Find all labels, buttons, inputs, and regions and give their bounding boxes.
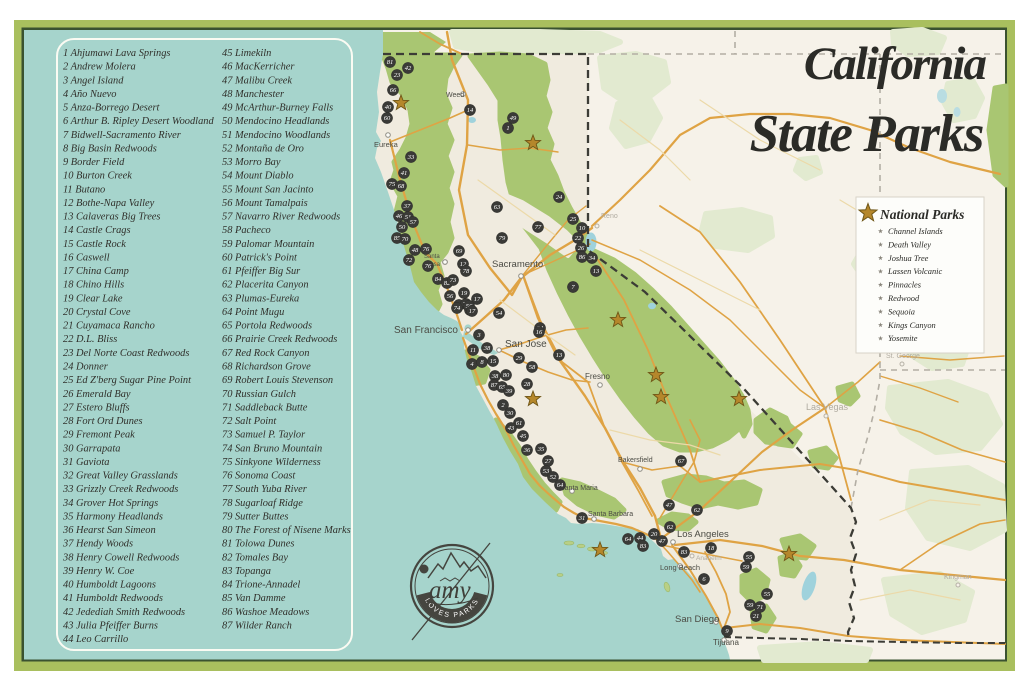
svg-text:60 Patrick's Point: 60 Patrick's Point — [222, 253, 298, 264]
svg-text:25: 25 — [570, 216, 577, 223]
svg-text:50: 50 — [399, 224, 406, 231]
svg-text:Sequoia: Sequoia — [888, 307, 915, 316]
svg-text:43: 43 — [508, 425, 515, 432]
svg-text:71 Saddleback Butte: 71 Saddleback Butte — [222, 402, 308, 413]
svg-text:Lassen Volcanic: Lassen Volcanic — [887, 267, 942, 276]
svg-text:61 Pfeiffer Big Sur: 61 Pfeiffer Big Sur — [222, 266, 301, 277]
svg-text:29 Fremont Peak: 29 Fremont Peak — [63, 430, 135, 441]
svg-text:52 Montaña de Oro: 52 Montaña de Oro — [222, 143, 304, 154]
svg-text:78: 78 — [463, 268, 470, 275]
svg-text:83 Topanga: 83 Topanga — [222, 566, 271, 577]
svg-text:3 Angel Island: 3 Angel Island — [62, 75, 124, 86]
svg-text:68 Richardson Grove: 68 Richardson Grove — [222, 362, 311, 373]
svg-text:37: 37 — [403, 203, 411, 210]
svg-text:14: 14 — [467, 107, 474, 114]
svg-text:64 Point Mugu: 64 Point Mugu — [222, 307, 284, 318]
svg-text:Santa Barbara: Santa Barbara — [588, 511, 633, 518]
svg-text:1: 1 — [506, 125, 509, 132]
svg-text:56 Mount Tamalpais: 56 Mount Tamalpais — [222, 198, 308, 209]
svg-text:84: 84 — [435, 276, 442, 283]
svg-text:73 Samuel P. Taylor: 73 Samuel P. Taylor — [222, 430, 306, 441]
svg-text:34 Grover Hot Springs: 34 Grover Hot Springs — [62, 498, 158, 509]
svg-text:77 South Yuba River: 77 South Yuba River — [222, 484, 308, 495]
svg-text:19: 19 — [461, 290, 468, 297]
svg-text:55: 55 — [746, 554, 753, 561]
svg-text:33: 33 — [407, 154, 415, 161]
svg-text:31 Gaviota: 31 Gaviota — [62, 457, 109, 468]
svg-text:28: 28 — [524, 381, 531, 388]
svg-text:Long Beach: Long Beach — [660, 563, 700, 572]
svg-text:63 Plumas-Eureka: 63 Plumas-Eureka — [222, 293, 299, 304]
svg-text:Los Angeles: Los Angeles — [677, 529, 729, 540]
svg-text:62: 62 — [694, 507, 701, 514]
svg-text:26: 26 — [578, 245, 585, 252]
svg-text:24 Donner: 24 Donner — [63, 362, 109, 373]
svg-text:San Francisco: San Francisco — [394, 325, 458, 336]
svg-text:76 Sonoma Coast: 76 Sonoma Coast — [222, 471, 296, 482]
svg-text:32 Great Valley Grasslands: 32 Great Valley Grasslands — [62, 471, 178, 482]
svg-text:39: 39 — [505, 388, 513, 395]
svg-text:State Parks: State Parks — [750, 105, 983, 163]
svg-text:64: 64 — [557, 482, 564, 489]
svg-text:77: 77 — [535, 224, 542, 231]
svg-text:36: 36 — [523, 447, 531, 454]
svg-text:31: 31 — [578, 515, 586, 522]
svg-text:69 Robert Louis Stevenson: 69 Robert Louis Stevenson — [222, 375, 333, 386]
svg-text:58 Pacheco: 58 Pacheco — [222, 225, 271, 236]
svg-text:48 Manchester: 48 Manchester — [222, 89, 285, 100]
svg-text:15: 15 — [490, 358, 497, 365]
svg-text:13: 13 — [556, 352, 563, 359]
svg-text:20: 20 — [651, 531, 658, 538]
svg-text:76: 76 — [425, 263, 432, 270]
svg-text:5 Anza-Borrego Desert: 5 Anza-Borrego Desert — [63, 103, 161, 114]
svg-text:Yosemite: Yosemite — [888, 334, 918, 343]
svg-text:6 Arthur B. Ripley Desert Wood: 6 Arthur B. Ripley Desert Woodland — [63, 116, 214, 127]
svg-text:35: 35 — [537, 446, 545, 453]
svg-text:61: 61 — [516, 420, 523, 427]
svg-text:1 Ahjumawi Lava Springs: 1 Ahjumawi Lava Springs — [63, 48, 170, 59]
svg-text:66 Prairie Creek Redwoods: 66 Prairie Creek Redwoods — [222, 334, 337, 345]
svg-text:85 Van Damme: 85 Van Damme — [222, 593, 286, 604]
svg-text:86 Washoe Meadows: 86 Washoe Meadows — [222, 607, 309, 618]
svg-text:23 Del Norte Coast Redwoods: 23 Del Norte Coast Redwoods — [63, 348, 189, 359]
svg-text:National Parks: National Parks — [879, 207, 964, 222]
svg-text:7 Bidwell-Sacramento River: 7 Bidwell-Sacramento River — [63, 130, 182, 141]
svg-text:67 Red Rock Canyon: 67 Red Rock Canyon — [222, 348, 309, 359]
svg-text:45: 45 — [520, 433, 527, 440]
svg-text:42 Jedediah Smith Redwoods: 42 Jedediah Smith Redwoods — [63, 607, 185, 618]
svg-text:15 Castle Rock: 15 Castle Rock — [63, 239, 126, 250]
svg-text:19 Clear Lake: 19 Clear Lake — [63, 293, 123, 304]
svg-text:67: 67 — [678, 458, 685, 465]
svg-text:62 Placerita Canyon: 62 Placerita Canyon — [222, 280, 309, 291]
svg-text:San Diego: San Diego — [675, 614, 719, 625]
svg-text:27 Estero Bluffs: 27 Estero Bluffs — [63, 402, 130, 413]
svg-text:17 China Camp: 17 China Camp — [63, 266, 129, 277]
svg-text:27: 27 — [545, 458, 552, 465]
svg-text:Sacramento: Sacramento — [492, 259, 543, 270]
svg-text:Bakersfield: Bakersfield — [618, 457, 653, 464]
svg-text:Kingman: Kingman — [944, 574, 972, 581]
svg-text:83: 83 — [681, 549, 688, 556]
svg-text:82 Tomales Bay: 82 Tomales Bay — [222, 552, 288, 563]
svg-text:74: 74 — [454, 305, 461, 312]
svg-text:46 MacKerricher: 46 MacKerricher — [222, 62, 295, 73]
svg-text:46: 46 — [396, 213, 403, 220]
svg-text:2 Andrew Molera: 2 Andrew Molera — [63, 62, 136, 73]
svg-text:Santa: Santa — [424, 254, 440, 260]
svg-text:47: 47 — [659, 538, 666, 545]
svg-text:Kings Canyon: Kings Canyon — [887, 321, 936, 330]
svg-text:30 Garrapata: 30 Garrapata — [62, 443, 120, 454]
svg-text:Anaheim: Anaheim — [696, 555, 722, 562]
svg-text:75: 75 — [389, 181, 396, 188]
svg-text:California: California — [804, 38, 987, 90]
svg-text:14 Castle Crags: 14 Castle Crags — [63, 225, 131, 236]
svg-text:38 Henry Cowell Redwoods: 38 Henry Cowell Redwoods — [62, 552, 179, 563]
svg-text:48: 48 — [412, 247, 419, 254]
svg-text:80 The Forest of Nisene Marks: 80 The Forest of Nisene Marks — [222, 525, 351, 536]
svg-text:34: 34 — [588, 255, 596, 262]
svg-text:60: 60 — [384, 115, 391, 122]
svg-text:Reno: Reno — [601, 213, 618, 220]
svg-text:79: 79 — [499, 235, 506, 242]
svg-text:12 Bothe-Napa Valley: 12 Bothe-Napa Valley — [63, 198, 155, 209]
svg-text:Channel Islands: Channel Islands — [888, 227, 943, 236]
svg-text:Weed: Weed — [446, 92, 464, 99]
svg-text:62: 62 — [667, 524, 674, 531]
svg-text:13: 13 — [593, 268, 600, 275]
svg-text:86: 86 — [579, 254, 586, 261]
svg-text:78 Sugarloaf Ridge: 78 Sugarloaf Ridge — [222, 498, 303, 509]
svg-text:83: 83 — [640, 543, 647, 550]
svg-text:29: 29 — [516, 355, 523, 362]
svg-text:9 Border Field: 9 Border Field — [63, 157, 125, 168]
svg-text:54: 54 — [496, 310, 503, 317]
svg-text:53 Morro Bay: 53 Morro Bay — [222, 157, 281, 168]
svg-text:4 Año Nuevo: 4 Año Nuevo — [63, 89, 117, 100]
svg-text:40 Humboldt Lagoons: 40 Humboldt Lagoons — [63, 580, 156, 591]
svg-text:65 Portola Redwoods: 65 Portola Redwoods — [222, 321, 312, 332]
svg-text:10 Burton Creek: 10 Burton Creek — [63, 171, 132, 182]
svg-text:49 McArthur-Burney Falls: 49 McArthur-Burney Falls — [222, 103, 333, 114]
svg-text:68: 68 — [398, 183, 405, 190]
svg-text:80: 80 — [503, 372, 510, 379]
svg-text:59: 59 — [747, 602, 754, 609]
svg-text:66: 66 — [390, 87, 397, 94]
svg-text:11 Butano: 11 Butano — [63, 184, 105, 195]
svg-text:16: 16 — [536, 329, 543, 336]
svg-text:45 Limekiln: 45 Limekiln — [222, 48, 271, 59]
svg-text:52: 52 — [550, 474, 557, 481]
svg-text:57: 57 — [410, 219, 417, 226]
svg-text:23: 23 — [394, 72, 401, 79]
svg-text:22 D.L. Bliss: 22 D.L. Bliss — [63, 334, 117, 345]
svg-text:47 Malibu Creek: 47 Malibu Creek — [222, 75, 292, 86]
svg-text:28 Fort Ord Dunes: 28 Fort Ord Dunes — [63, 416, 143, 427]
svg-text:26 Emerald Bay: 26 Emerald Bay — [63, 389, 131, 400]
svg-text:74 San Bruno Mountain: 74 San Bruno Mountain — [222, 443, 322, 454]
svg-text:Pinnacles: Pinnacles — [887, 281, 921, 290]
svg-text:76: 76 — [423, 246, 430, 253]
svg-text:54 Mount Diablo: 54 Mount Diablo — [222, 171, 294, 182]
svg-text:44 Leo Carrillo: 44 Leo Carrillo — [63, 634, 128, 645]
svg-text:87 Wilder Ranch: 87 Wilder Ranch — [222, 621, 292, 632]
svg-text:16 Caswell: 16 Caswell — [63, 253, 110, 264]
svg-text:amy: amy — [429, 577, 472, 604]
svg-text:49: 49 — [510, 115, 517, 122]
svg-text:75 Sinkyone Wilderness: 75 Sinkyone Wilderness — [222, 457, 321, 468]
svg-text:40: 40 — [385, 104, 392, 111]
svg-text:18: 18 — [708, 545, 715, 552]
svg-text:73: 73 — [450, 277, 457, 284]
svg-text:55 Mount San Jacinto: 55 Mount San Jacinto — [222, 184, 313, 195]
svg-text:33 Grizzly Creek Redwoods: 33 Grizzly Creek Redwoods — [62, 484, 178, 495]
svg-text:51 Mendocino Woodlands: 51 Mendocino Woodlands — [222, 130, 330, 141]
svg-text:72 Salt Point: 72 Salt Point — [222, 416, 277, 427]
svg-text:43 Julia Pfeiffer Burns: 43 Julia Pfeiffer Burns — [63, 621, 158, 632]
svg-text:Death Valley: Death Valley — [887, 240, 931, 249]
svg-text:Las Vegas: Las Vegas — [806, 402, 849, 412]
svg-text:37 Hendy Woods: 37 Hendy Woods — [62, 539, 133, 550]
svg-text:18 Chino Hills: 18 Chino Hills — [63, 280, 124, 291]
svg-text:64: 64 — [625, 536, 632, 543]
svg-text:21: 21 — [753, 613, 760, 620]
svg-text:70 Russian Gulch: 70 Russian Gulch — [222, 389, 296, 400]
svg-text:30: 30 — [506, 410, 514, 417]
svg-text:8 Big Basin Redwoods: 8 Big Basin Redwoods — [63, 143, 157, 154]
svg-text:47: 47 — [666, 502, 673, 509]
svg-text:41: 41 — [401, 170, 408, 177]
svg-text:41 Humboldt Redwoods: 41 Humboldt Redwoods — [63, 593, 163, 604]
svg-text:57 Navarro River Redwoods: 57 Navarro River Redwoods — [222, 212, 340, 223]
svg-text:50 Mendocino Headlands: 50 Mendocino Headlands — [222, 116, 329, 127]
svg-text:81 Tolowa Dunes: 81 Tolowa Dunes — [222, 539, 294, 550]
svg-text:17: 17 — [474, 296, 481, 303]
svg-text:72: 72 — [406, 257, 413, 264]
svg-text:17: 17 — [469, 308, 476, 315]
svg-text:21 Cuyamaca Rancho: 21 Cuyamaca Rancho — [63, 321, 155, 332]
svg-text:81: 81 — [387, 59, 394, 66]
svg-text:24: 24 — [556, 194, 563, 201]
svg-text:San Jose: San Jose — [505, 339, 547, 350]
svg-text:63: 63 — [494, 204, 501, 211]
svg-text:58: 58 — [529, 364, 536, 371]
svg-text:St. George: St. George — [886, 353, 920, 360]
svg-text:70: 70 — [402, 236, 409, 243]
svg-text:10: 10 — [579, 225, 586, 232]
svg-text:38: 38 — [483, 345, 491, 352]
svg-text:Redwood: Redwood — [887, 294, 920, 303]
svg-text:84 Trione-Annadel: 84 Trione-Annadel — [222, 580, 300, 591]
svg-text:20 Crystal Cove: 20 Crystal Cove — [63, 307, 131, 318]
svg-text:56: 56 — [447, 293, 454, 300]
svg-text:39 Henry W. Coe: 39 Henry W. Coe — [62, 566, 135, 577]
svg-text:11: 11 — [470, 347, 476, 354]
svg-text:79 Sutter Buttes: 79 Sutter Buttes — [222, 511, 288, 522]
svg-text:Tijuana: Tijuana — [713, 638, 739, 647]
svg-text:69: 69 — [456, 248, 463, 255]
svg-text:55: 55 — [764, 591, 771, 598]
svg-text:Eureka: Eureka — [374, 140, 399, 149]
svg-text:59: 59 — [743, 564, 750, 571]
svg-text:22: 22 — [575, 235, 582, 242]
svg-text:35 Harmony Headlands: 35 Harmony Headlands — [62, 511, 163, 522]
svg-text:42: 42 — [405, 65, 412, 72]
svg-text:59 Palomar Mountain: 59 Palomar Mountain — [222, 239, 314, 250]
svg-text:36 Hearst San Simeon: 36 Hearst San Simeon — [62, 525, 156, 536]
svg-text:38: 38 — [491, 373, 499, 380]
svg-text:Fresno: Fresno — [585, 372, 610, 381]
svg-text:25 Ed Z'berg Sugar Pine Point: 25 Ed Z'berg Sugar Pine Point — [63, 375, 192, 386]
svg-text:Joshua Tree: Joshua Tree — [888, 254, 929, 263]
svg-text:13 Calaveras Big Trees: 13 Calaveras Big Trees — [63, 212, 160, 223]
svg-text:71: 71 — [757, 604, 764, 611]
